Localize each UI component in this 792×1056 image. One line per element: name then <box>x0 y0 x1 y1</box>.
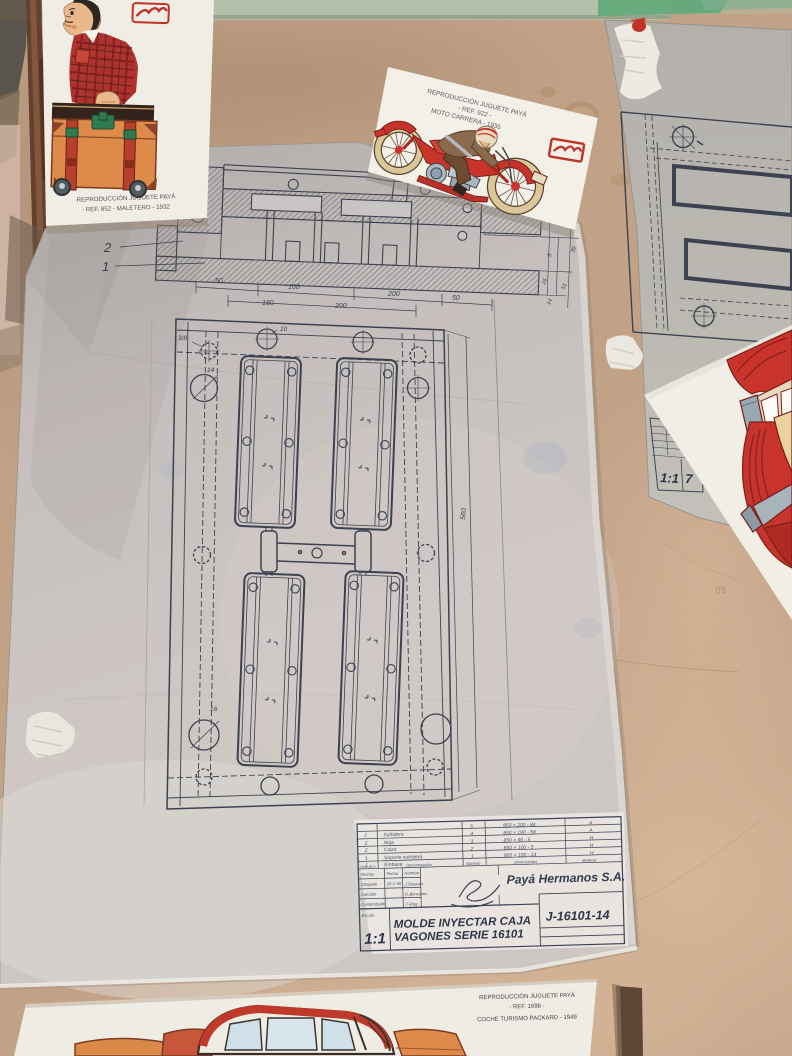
svg-text:Hoja: Hoja <box>383 840 394 846</box>
svg-text:Comprobado: Comprobado <box>361 901 386 907</box>
svg-text:1:1: 1:1 <box>660 470 680 486</box>
svg-text:100: 100 <box>288 284 300 291</box>
svg-text:3: 3 <box>470 839 473 845</box>
svg-text:16-1-46: 16-1-46 <box>387 881 402 886</box>
svg-text:2: 2 <box>364 848 368 854</box>
svg-text:560: 560 <box>460 508 468 520</box>
svg-text:1: 1 <box>365 856 368 862</box>
svg-text:J-16101-14: J-16101-14 <box>545 908 609 924</box>
svg-text:Nombre: Nombre <box>404 870 420 875</box>
svg-text:Material: Material <box>582 857 596 862</box>
svg-text:2: 2 <box>103 240 112 255</box>
svg-text:10: 10 <box>280 326 288 333</box>
svg-text:850 × 100 - 5: 850 × 100 - 5 <box>504 845 534 852</box>
svg-text:Núm de p.: Núm de p. <box>360 864 376 868</box>
svg-text:5: 5 <box>470 824 473 830</box>
svg-text:2: 2 <box>363 841 367 847</box>
svg-text:Fechas: Fechas <box>360 872 375 877</box>
svg-text:200: 200 <box>387 291 400 298</box>
svg-text:50: 50 <box>215 278 223 285</box>
svg-text:Dimensiones: Dimensiones <box>514 859 537 865</box>
svg-text:4: 4 <box>470 831 473 837</box>
svg-text:850 × 90 - 5: 850 × 90 - 5 <box>503 837 530 844</box>
svg-text:Número: Número <box>466 861 481 866</box>
svg-text:1: 1 <box>102 259 109 274</box>
svg-text:1:1: 1:1 <box>364 930 386 948</box>
svg-text:H: H <box>590 850 594 856</box>
svg-text:850 × 100 - 14: 850 × 100 - 14 <box>504 852 537 859</box>
svg-text:J.Sanjuán: J.Sanjuán <box>404 881 424 887</box>
svg-text:Calcado: Calcado <box>361 891 377 896</box>
svg-text:O.Bernabeu: O.Bernabeu <box>405 891 428 897</box>
svg-text:3/8: 3/8 <box>178 335 187 342</box>
svg-text:Soporte sufridera: Soporte sufridera <box>384 854 423 861</box>
svg-text:200: 200 <box>334 303 347 310</box>
svg-text:14: 14 <box>207 367 215 374</box>
svg-text:Embase: Embase <box>384 862 403 869</box>
svg-text:- REF. 1698 -: - REF. 1698 - <box>509 1004 545 1011</box>
svg-text:850 × 190 - 58: 850 × 190 - 58 <box>503 830 536 837</box>
svg-text:03: 03 <box>715 585 726 596</box>
svg-text:16: 16 <box>210 706 218 713</box>
svg-text:2: 2 <box>470 846 474 852</box>
svg-text:1: 1 <box>471 854 474 860</box>
svg-text:Sufridera: Sufridera <box>383 832 404 839</box>
svg-text:Escala: Escala <box>361 913 374 918</box>
svg-text:1: 1 <box>364 833 367 839</box>
svg-text:180: 180 <box>262 300 274 307</box>
svg-text:H: H <box>590 843 594 849</box>
svg-text:H: H <box>589 835 593 841</box>
svg-text:50: 50 <box>452 295 460 302</box>
svg-text:850 × 200 - 84: 850 × 200 - 84 <box>503 822 536 829</box>
svg-text:Fecha: Fecha <box>386 871 398 876</box>
svg-text:Calzo: Calzo <box>384 847 397 853</box>
svg-text:7.Roig: 7.Roig <box>405 901 418 906</box>
svg-text:Denominación: Denominación <box>406 862 432 868</box>
svg-text:Dibujado: Dibujado <box>361 881 378 886</box>
